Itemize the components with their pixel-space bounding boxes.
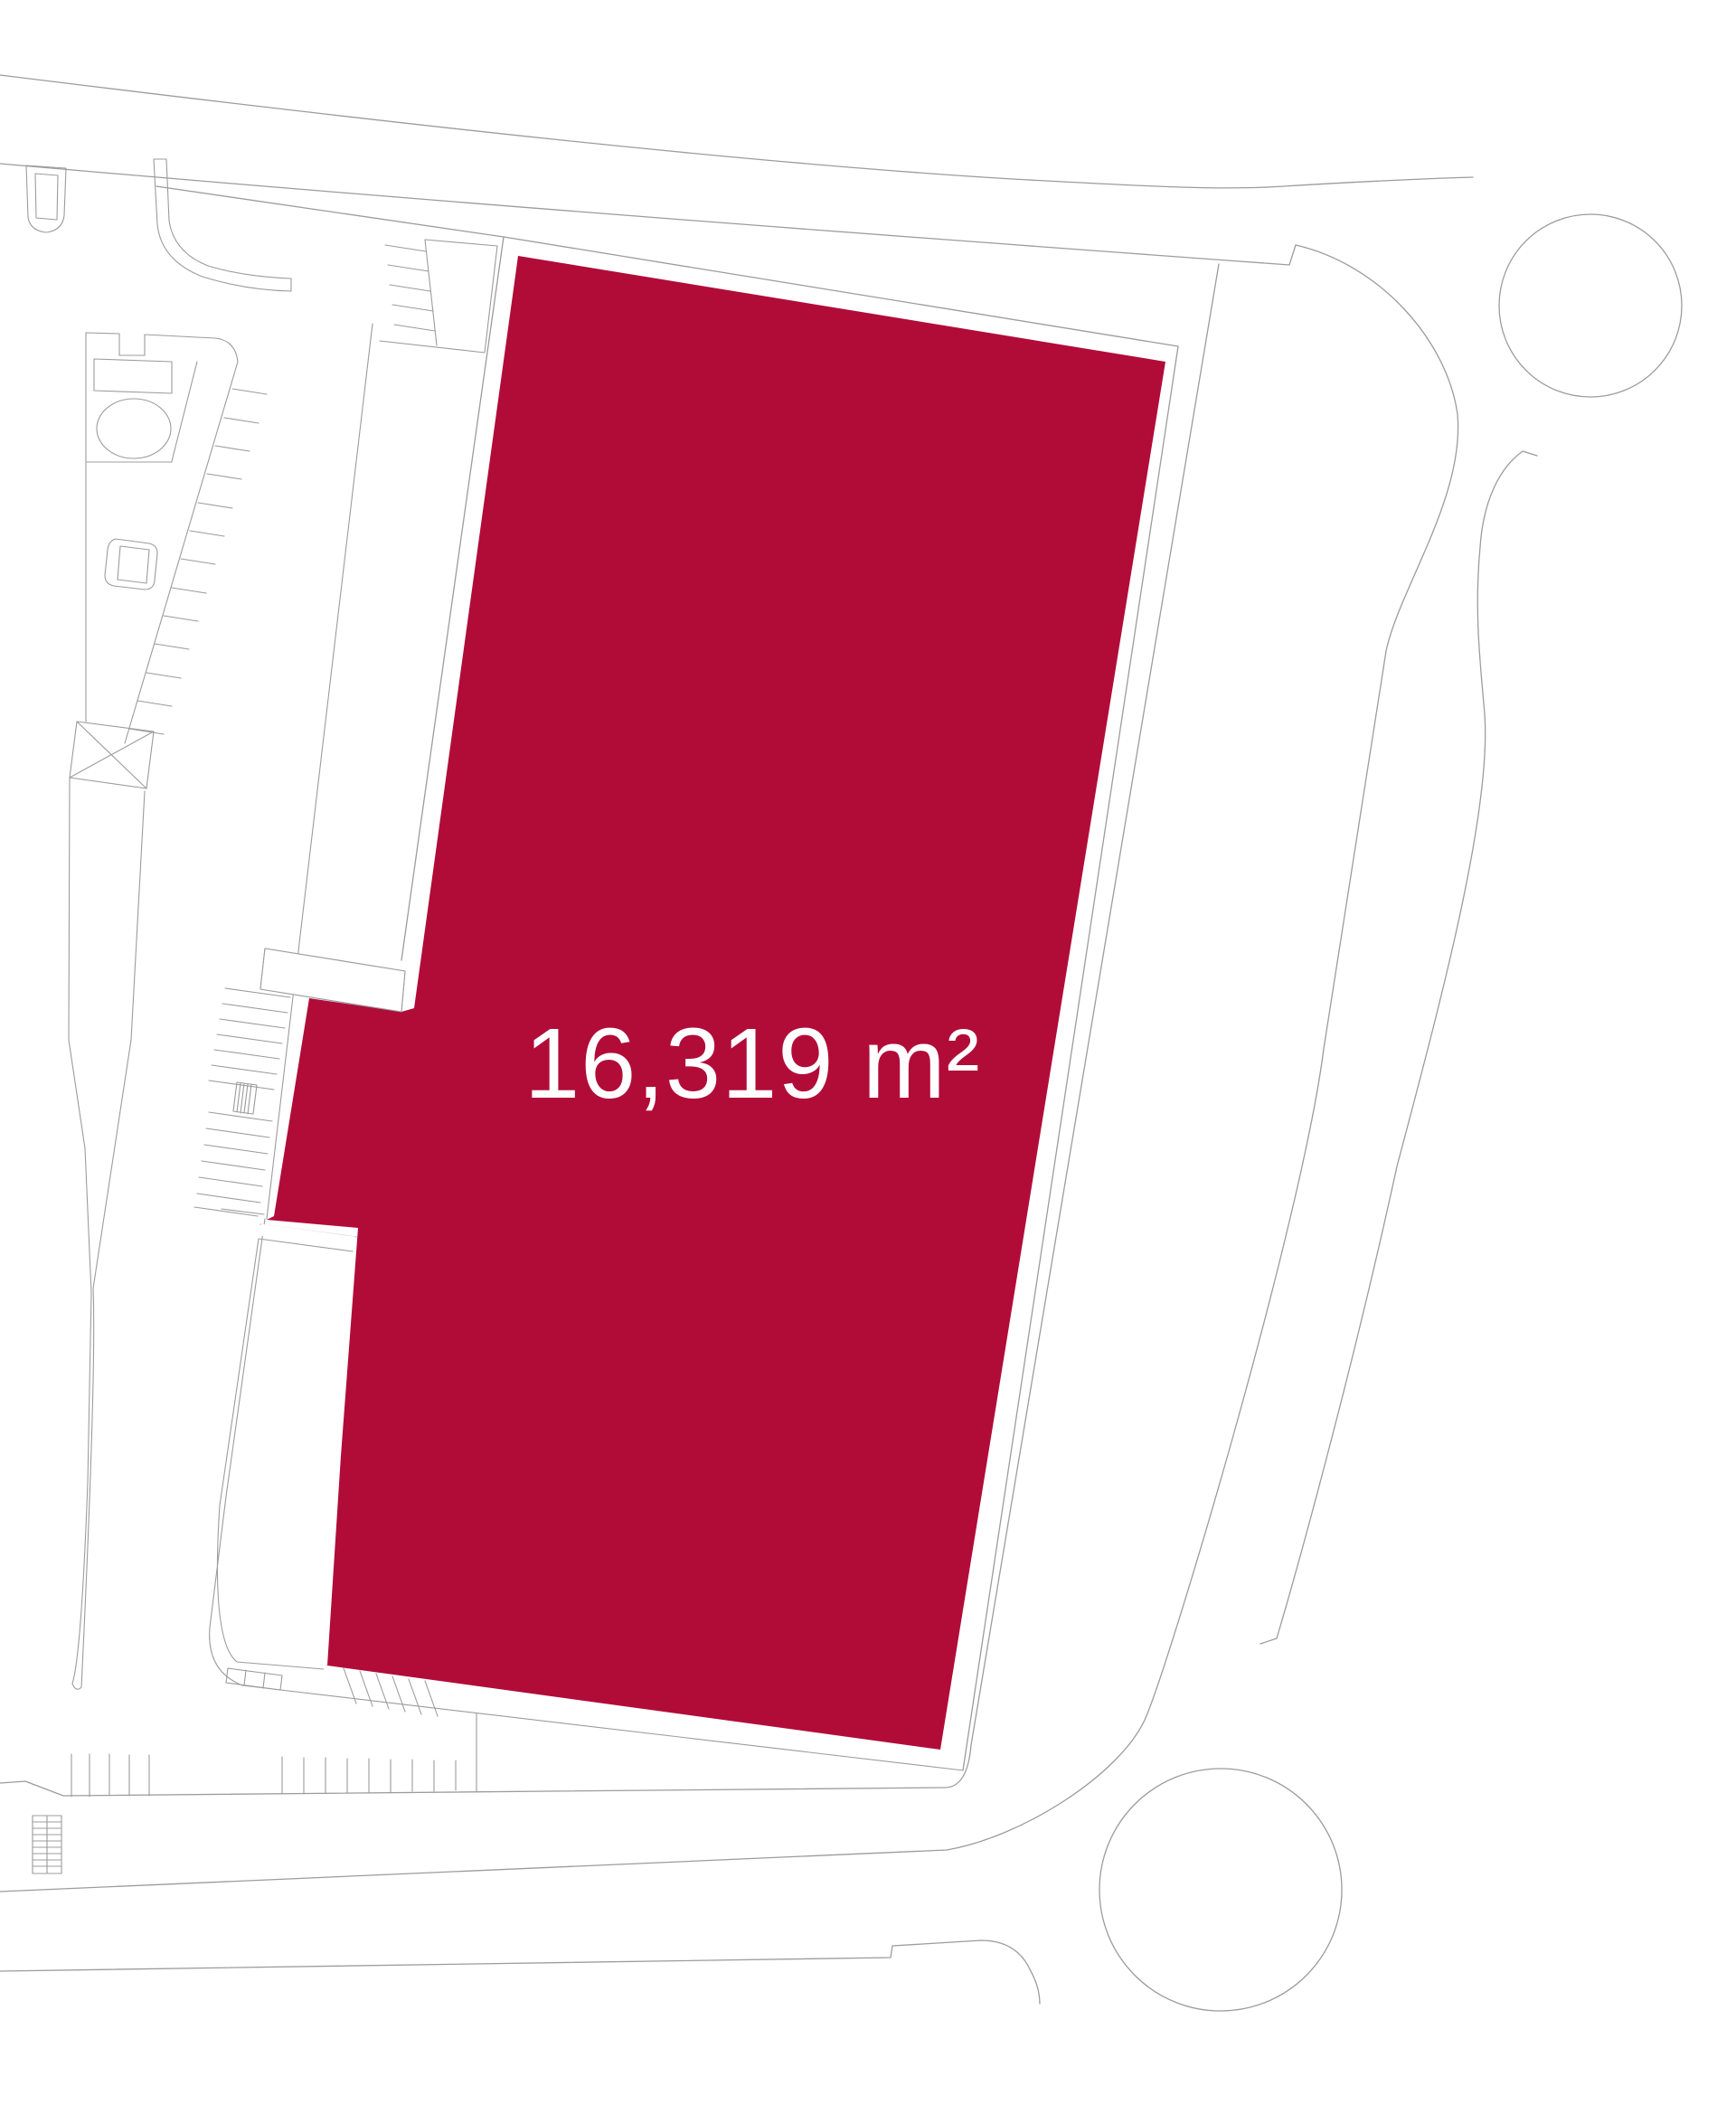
east-road-right-edge bbox=[1260, 451, 1537, 1644]
tree-ellipse bbox=[97, 399, 171, 458]
south-street-stripes-east bbox=[282, 1757, 456, 1794]
north-road-upper-edge bbox=[0, 75, 1473, 188]
access-road-edge bbox=[156, 186, 504, 237]
plot-area-label: 16,319 m² bbox=[524, 1008, 980, 1119]
north-parking-bay bbox=[380, 240, 497, 353]
traffic-island bbox=[26, 165, 66, 232]
landscape-circles bbox=[1099, 214, 1682, 2011]
cell-box bbox=[226, 1668, 282, 1690]
site-plan-page: 16,319 m² bbox=[0, 0, 1736, 2114]
west-strip bbox=[69, 778, 145, 1689]
site-plan-canvas: 16,319 m² bbox=[0, 0, 1736, 2114]
crossed-box bbox=[70, 722, 154, 788]
south-street-lower-edge bbox=[0, 1940, 1040, 2004]
roundabout-circle bbox=[1099, 1769, 1342, 2011]
plot-group: 16,319 m² bbox=[260, 237, 1178, 1770]
island-compartment bbox=[87, 359, 197, 462]
parking-island-notch bbox=[119, 334, 145, 355]
stairs-symbol bbox=[33, 1816, 61, 1873]
dock-stripes-lower bbox=[194, 1112, 272, 1216]
tree-pit bbox=[105, 539, 157, 590]
parking-island-outline bbox=[86, 333, 238, 743]
north-road-lower-edge bbox=[0, 164, 1296, 265]
south-street-stripes-west bbox=[71, 1754, 149, 1797]
green-island-circle bbox=[1499, 214, 1682, 397]
dock-stripes-upper bbox=[209, 988, 290, 1090]
